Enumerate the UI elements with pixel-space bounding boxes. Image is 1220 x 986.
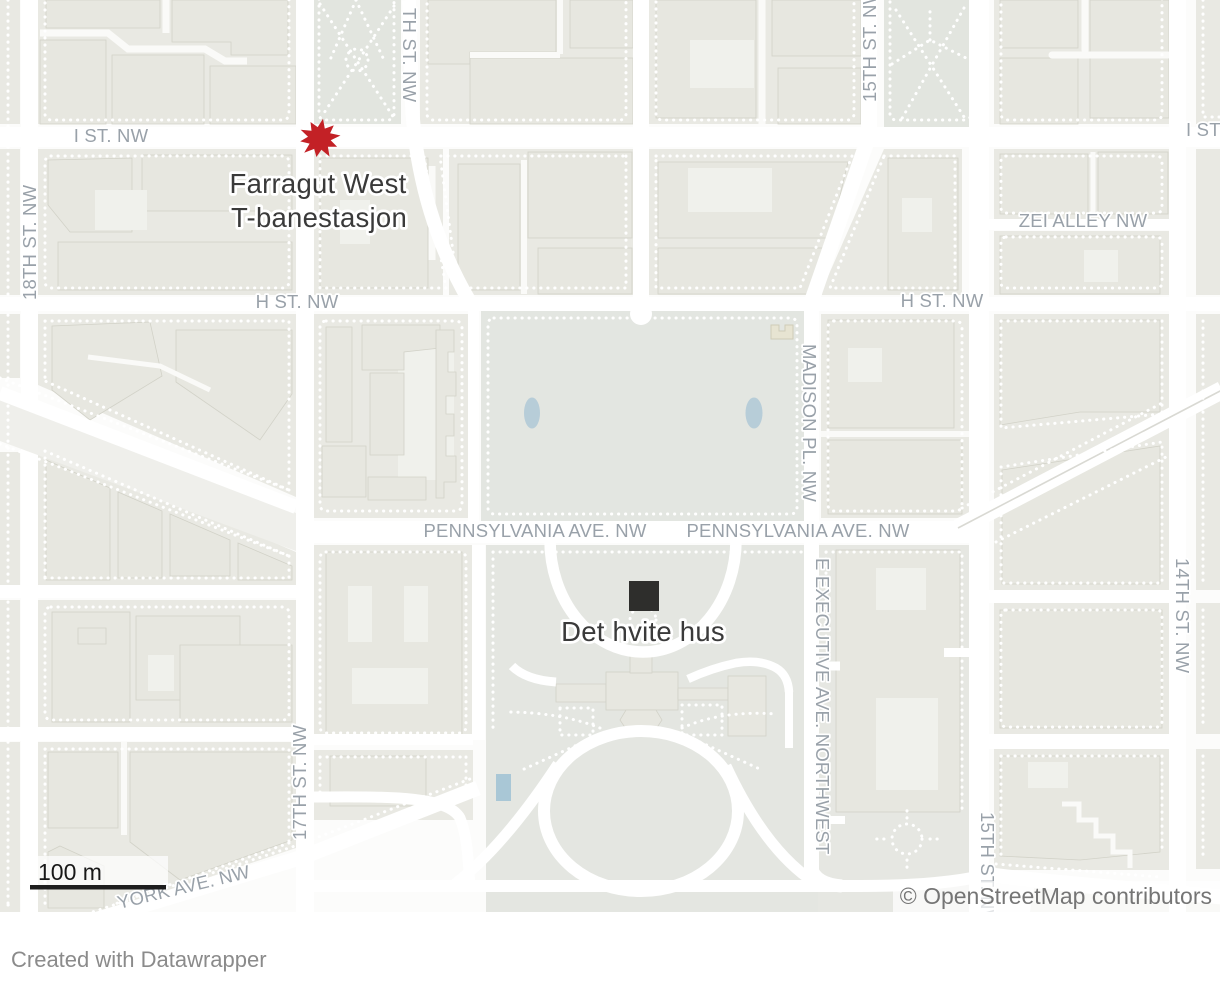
svg-text:ZEI ALLEY NW: ZEI ALLEY NW [1019,210,1148,231]
svg-text:I ST. NW: I ST. NW [1186,119,1220,140]
svg-text:H ST. NW: H ST. NW [901,290,984,311]
svg-text:MADISON PL. NW: MADISON PL. NW [799,344,820,502]
svg-text:PENNSYLVANIA AVE. NW: PENNSYLVANIA AVE. NW [424,520,647,541]
svg-text:Farragut West: Farragut West [230,168,407,199]
svg-text:15TH ST. NW: 15TH ST. NW [859,0,880,102]
svg-text:14TH ST. NW: 14TH ST. NW [1172,558,1193,674]
svg-text:17TH ST. NW: 17TH ST. NW [289,724,310,840]
svg-text:E EXECUTIVE AVE. NORTHWEST: E EXECUTIVE AVE. NORTHWEST [812,558,833,854]
svg-text:T-banestasjon: T-banestasjon [231,202,407,233]
svg-text:PENNSYLVANIA AVE. NW: PENNSYLVANIA AVE. NW [687,520,910,541]
svg-text:100 m: 100 m [38,859,102,885]
svg-text:H ST. NW: H ST. NW [256,291,339,312]
svg-text:TH ST. NW: TH ST. NW [399,8,420,103]
svg-text:18TH ST. NW: 18TH ST. NW [19,184,40,300]
svg-text:I ST. NW: I ST. NW [74,125,149,146]
svg-text:© OpenStreetMap contributors: © OpenStreetMap contributors [900,883,1212,909]
svg-text:Det hvite hus: Det hvite hus [561,616,725,647]
